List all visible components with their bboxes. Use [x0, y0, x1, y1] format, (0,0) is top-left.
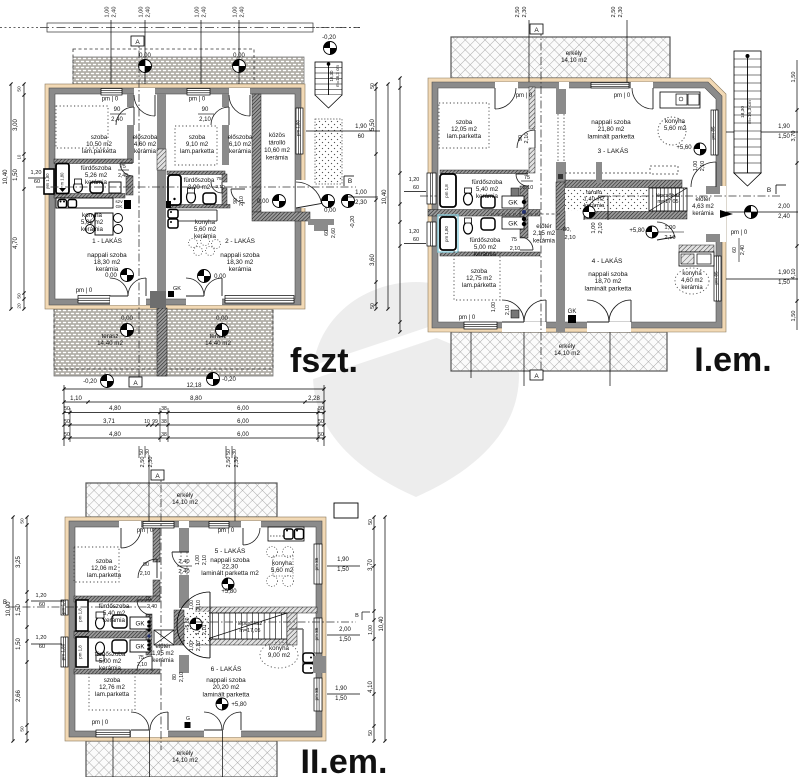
- svg-text:nappali szoba: nappali szoba: [220, 252, 260, 259]
- svg-text:konyha: konyha: [82, 212, 103, 219]
- svg-text:pm | 0: pm | 0: [76, 288, 93, 294]
- svg-text:14,40 m2: 14,40 m2: [97, 340, 123, 347]
- svg-text:szoba: szoba: [456, 119, 473, 126]
- svg-text:75: 75: [145, 596, 151, 602]
- svg-text:38: 38: [161, 432, 167, 438]
- svg-text:1,00: 1,00: [233, 7, 239, 18]
- svg-text:m=17,05: m=17,05: [657, 199, 678, 205]
- svg-text:fürdőszoba: fürdőszoba: [95, 651, 126, 658]
- svg-text:2,00: 2,00: [339, 627, 351, 633]
- svg-text:60: 60: [413, 237, 419, 243]
- svg-text:5,00 m2: 5,00 m2: [474, 244, 497, 251]
- svg-text:18,30: 18,30: [740, 106, 746, 118]
- svg-text:75: 75: [216, 176, 222, 182]
- svg-text:90: 90: [143, 562, 149, 568]
- svg-text:A: A: [135, 39, 140, 46]
- svg-text:12,76 m2: 12,76 m2: [99, 684, 125, 691]
- svg-text:pm | 0: pm | 0: [218, 528, 235, 534]
- svg-text:1,00: 1,00: [664, 225, 675, 231]
- svg-text:4,10: 4,10: [368, 681, 374, 693]
- svg-text:GK: GK: [508, 221, 518, 228]
- svg-text:1,00: 1,00: [139, 7, 145, 18]
- svg-text:szoba: szoba: [104, 677, 121, 684]
- svg-text:1,10: 1,10: [70, 396, 82, 402]
- svg-text:9,00 m2: 9,00 m2: [268, 652, 291, 659]
- svg-text:kerámia: kerámia: [266, 155, 289, 162]
- svg-text:18,30: 18,30: [329, 70, 334, 82]
- svg-text:1,90: 1,90: [335, 686, 347, 692]
- svg-text:nappali szoba: nappali szoba: [591, 119, 631, 126]
- svg-text:5,06 m2: 5,06 m2: [81, 219, 104, 226]
- svg-text:lam.parketta: lam.parketta: [87, 572, 122, 579]
- svg-text:2,30: 2,30: [234, 457, 240, 468]
- svg-text:5,00 m2: 5,00 m2: [99, 658, 122, 665]
- svg-text:1,50: 1,50: [337, 567, 349, 573]
- svg-text:75: 75: [511, 237, 517, 243]
- svg-text:2,40: 2,40: [178, 559, 189, 565]
- svg-text:kerámia: kerámia: [96, 266, 119, 273]
- svg-text:fürdőszoba: fürdőszoba: [99, 603, 130, 610]
- svg-text:60: 60: [732, 247, 738, 253]
- svg-text:50: 50: [370, 83, 376, 89]
- svg-text:2,00: 2,00: [778, 204, 790, 210]
- svg-text:pm | 0: pm | 0: [92, 720, 109, 726]
- svg-text:60: 60: [39, 602, 45, 608]
- svg-text:előszoba: előszoba: [133, 134, 158, 141]
- svg-text:18,30 m2: 18,30 m2: [227, 259, 254, 266]
- svg-text:50: 50: [64, 406, 70, 412]
- svg-text:1,20: 1,20: [409, 177, 420, 183]
- svg-text:B: B: [355, 613, 359, 619]
- svg-text:20: 20: [17, 303, 23, 309]
- svg-text:pm 1,8: pm 1,8: [78, 608, 83, 622]
- svg-text:lam.parketta: lam.parketta: [180, 148, 215, 155]
- svg-text:2,10: 2,10: [140, 571, 151, 577]
- svg-text:21,80 m2: 21,80 m2: [598, 126, 625, 133]
- svg-text:1,50: 1,50: [778, 134, 790, 140]
- svg-text:12,05 m2: 12,05 m2: [451, 126, 477, 133]
- svg-text:8,80: 8,80: [190, 396, 202, 402]
- svg-text:18,30 m2: 18,30 m2: [94, 259, 121, 266]
- svg-text:A: A: [155, 473, 160, 480]
- svg-text:4,80: 4,80: [109, 432, 121, 438]
- svg-text:1,00: 1,00: [195, 555, 201, 565]
- svg-text:5 - LAKÁS: 5 - LAKÁS: [215, 546, 246, 555]
- svg-text:75: 75: [120, 164, 126, 170]
- svg-text:5,50: 5,50: [370, 119, 376, 131]
- svg-text:kerámia: kerámia: [692, 211, 714, 217]
- svg-text:+5,60: +5,60: [676, 145, 692, 151]
- svg-text:2,30: 2,30: [522, 7, 528, 18]
- svg-text:GK: GK: [173, 286, 181, 292]
- svg-text:kerámia: kerámia: [533, 237, 556, 244]
- svg-text:előtér: előtér: [155, 644, 170, 650]
- svg-text:4,63 m2: 4,63 m2: [692, 204, 714, 210]
- svg-text:2,10: 2,10: [598, 222, 604, 233]
- svg-text:1,20: 1,20: [31, 170, 42, 176]
- svg-text:14,40 m2: 14,40 m2: [205, 340, 231, 347]
- svg-text:30: 30: [232, 449, 238, 455]
- svg-text:2,50: 2,50: [226, 457, 232, 468]
- svg-text:kerámia: kerámia: [229, 148, 252, 155]
- svg-text:kerámia: kerámia: [103, 617, 126, 624]
- svg-text:laminált parketta: laminált parketta: [588, 133, 635, 140]
- svg-text:1,00: 1,00: [189, 641, 195, 651]
- svg-text:75: 75: [138, 655, 144, 661]
- svg-text:10: 10: [17, 154, 22, 159]
- svg-text:6,00: 6,00: [237, 419, 249, 425]
- svg-text:75: 75: [524, 175, 530, 181]
- svg-text:50: 50: [20, 726, 26, 732]
- svg-text:1,00: 1,00: [491, 302, 497, 312]
- svg-text:2,10: 2,10: [524, 133, 530, 144]
- svg-text:14,10 m2: 14,10 m2: [172, 499, 198, 506]
- svg-text:1,90: 1,90: [778, 124, 790, 130]
- svg-text:60: 60: [39, 644, 45, 650]
- svg-text:pm | 0: pm | 0: [189, 97, 206, 103]
- svg-text:50: 50: [368, 519, 374, 525]
- svg-text:nappali szoba: nappali szoba: [206, 677, 246, 684]
- svg-text:2,10: 2,10: [196, 641, 202, 651]
- svg-text:szoba: szoba: [189, 134, 206, 141]
- svg-text:kerámia: kerámia: [85, 179, 108, 186]
- svg-text:50: 50: [370, 303, 376, 309]
- svg-text:14,10 m2: 14,10 m2: [172, 757, 198, 764]
- svg-text:+5,80: +5,80: [629, 228, 645, 234]
- svg-text:A: A: [534, 27, 539, 34]
- svg-text:m=17,05: m=17,05: [239, 628, 260, 634]
- svg-text:4,70: 4,70: [13, 237, 19, 249]
- svg-text:B: B: [767, 187, 771, 194]
- svg-text:2,40: 2,40: [202, 7, 208, 18]
- svg-text:0,00: 0,00: [257, 199, 269, 205]
- svg-text:pm 1,80: pm 1,80: [296, 120, 301, 136]
- svg-text:4,60 m2: 4,60 m2: [134, 141, 157, 148]
- svg-text:lam.parketta: lam.parketta: [95, 691, 130, 698]
- svg-text:2,10: 2,10: [179, 672, 185, 682]
- svg-text:erkély: erkély: [559, 343, 576, 350]
- svg-text:1,00: 1,00: [368, 625, 374, 635]
- svg-text:pm | 0: pm | 0: [731, 230, 748, 236]
- svg-text:lam.parketta: lam.parketta: [82, 148, 117, 155]
- svg-text:pm 85: pm 85: [714, 271, 720, 285]
- svg-text:m=16,3 cm: m=16,3 cm: [335, 65, 340, 87]
- svg-text:2,50: 2,50: [140, 457, 146, 468]
- svg-text:fürdőszoba: fürdőszoba: [472, 179, 503, 186]
- svg-text:2,40: 2,40: [112, 7, 118, 18]
- svg-text:50: 50: [17, 86, 23, 92]
- svg-text:2,15 m2: 2,15 m2: [533, 230, 556, 237]
- svg-text:erkély: erkély: [566, 50, 583, 57]
- svg-text:10: 10: [144, 419, 150, 425]
- svg-text:lam.parketta: lam.parketta: [447, 133, 482, 140]
- svg-text:-0,20: -0,20: [350, 216, 356, 229]
- svg-text:0,00: 0,00: [214, 274, 226, 280]
- svg-text:laminált parketta m2: laminált parketta m2: [201, 570, 259, 577]
- svg-text:1,50: 1,50: [335, 696, 347, 702]
- svg-text:2,10: 2,10: [700, 161, 706, 172]
- svg-text:10,40: 10,40: [382, 189, 388, 205]
- svg-text:4,60 m2: 4,60 m2: [681, 278, 703, 284]
- svg-text:4,10: 4,10: [791, 269, 797, 280]
- svg-text:2,10: 2,10: [202, 625, 208, 635]
- svg-text:2,10: 2,10: [664, 235, 675, 241]
- svg-text:pm 85: pm 85: [314, 627, 319, 640]
- svg-text:1,40 m2: 1,40 m2: [584, 197, 605, 203]
- svg-text:2,30: 2,30: [355, 200, 367, 206]
- svg-text:1,50: 1,50: [16, 638, 22, 650]
- svg-text:A: A: [534, 373, 539, 380]
- svg-text:1,50: 1,50: [778, 280, 790, 286]
- svg-text:-0,20: -0,20: [322, 35, 336, 41]
- svg-text:előtér: előtér: [695, 197, 710, 203]
- svg-text:5,60 m2: 5,60 m2: [664, 125, 687, 132]
- svg-text:2,50: 2,50: [515, 7, 521, 18]
- svg-text:kerámia: kerámia: [134, 148, 157, 155]
- svg-text:tárolló: tárolló: [269, 140, 286, 147]
- svg-text:konyhá: konyhá: [682, 271, 702, 277]
- svg-text:20,20 m2: 20,20 m2: [213, 684, 240, 691]
- svg-text:1,00: 1,00: [693, 161, 699, 172]
- svg-text:fürdőszoba: fürdőszoba: [470, 237, 501, 244]
- svg-text:18,70 m2: 18,70 m2: [595, 278, 622, 285]
- svg-text:3,25: 3,25: [16, 556, 22, 568]
- svg-text:szoba: szoba: [96, 558, 113, 565]
- svg-text:1,50: 1,50: [791, 72, 797, 83]
- svg-text:0,00: 0,00: [105, 273, 117, 279]
- svg-text:60: 60: [34, 179, 40, 185]
- svg-text:erkély: erkély: [177, 492, 194, 499]
- svg-text:9,10 m2: 9,10 m2: [186, 141, 209, 148]
- svg-text:pm 1,80: pm 1,80: [444, 226, 449, 242]
- svg-text:12,75 m2: 12,75 m2: [466, 275, 492, 282]
- svg-text:50: 50: [318, 432, 324, 438]
- svg-text:I.em.: I.em.: [694, 341, 771, 379]
- svg-text:1,50: 1,50: [791, 311, 797, 322]
- svg-text:12,18: 12,18: [186, 383, 202, 389]
- svg-text:pm 1,80: pm 1,80: [45, 173, 50, 189]
- svg-text:pm | 0: pm | 0: [459, 315, 476, 321]
- svg-text:5,40 m2: 5,40 m2: [476, 186, 499, 193]
- svg-text:kerámia: kerámia: [229, 266, 252, 273]
- svg-text:GK: GK: [136, 621, 146, 628]
- svg-text:14,10 m2: 14,10 m2: [554, 350, 580, 357]
- svg-text:1,90: 1,90: [337, 557, 349, 563]
- svg-text:2,10: 2,10: [523, 185, 534, 191]
- svg-text:pm | 0: pm | 0: [516, 93, 533, 99]
- svg-text:pm | 0: pm | 0: [102, 97, 119, 103]
- svg-text:GK: GK: [568, 309, 577, 315]
- svg-text:laminált parketta: laminált parketta: [203, 691, 250, 698]
- svg-text:kerámia: kerámia: [681, 285, 703, 291]
- svg-text:10,00: 10,00: [6, 601, 12, 617]
- svg-text:pm 1,8: pm 1,8: [444, 184, 449, 198]
- svg-text:10,50 m2: 10,50 m2: [86, 141, 112, 148]
- svg-text:szoba: szoba: [91, 134, 108, 141]
- svg-text:1,20: 1,20: [36, 635, 47, 641]
- svg-text:90: 90: [202, 107, 209, 113]
- svg-text:50: 50: [318, 406, 324, 412]
- svg-text:3,70: 3,70: [791, 131, 797, 142]
- svg-text:GK: GK: [508, 200, 518, 207]
- svg-text:50: 50: [318, 419, 324, 425]
- svg-text:m=16,3 cm: m=16,3 cm: [747, 100, 753, 124]
- svg-text:pm 85: pm 85: [314, 687, 319, 700]
- svg-text:2,40: 2,40: [240, 7, 246, 18]
- svg-text:4,80: 4,80: [109, 406, 121, 412]
- svg-text:2,66: 2,66: [16, 690, 22, 702]
- svg-text:99: 99: [152, 419, 158, 425]
- svg-text:pm 85: pm 85: [314, 557, 319, 570]
- svg-text:pm | 0: pm | 0: [137, 528, 154, 534]
- svg-text:6 - LAKÁS: 6 - LAKÁS: [211, 664, 242, 673]
- svg-text:12,06 m2: 12,06 m2: [91, 565, 117, 572]
- svg-text:konyhá: konyhá: [269, 645, 290, 652]
- svg-text:1,20: 1,20: [409, 229, 420, 235]
- svg-text:közös: közös: [269, 132, 285, 139]
- svg-text:előtér: előtér: [536, 223, 551, 230]
- svg-text:nappali szoba: nappali szoba: [588, 271, 628, 278]
- svg-text:3,90 m2: 3,90 m2: [188, 184, 211, 191]
- svg-text:6,00: 6,00: [237, 432, 249, 438]
- svg-text:3,70: 3,70: [368, 559, 374, 571]
- svg-text:erkély: erkély: [177, 750, 194, 757]
- svg-text:2,30: 2,30: [618, 7, 624, 18]
- svg-text:2,10: 2,10: [137, 662, 147, 668]
- svg-text:30: 30: [145, 449, 151, 455]
- svg-text:pm 85: pm 85: [711, 126, 717, 140]
- svg-text:2,30: 2,30: [148, 457, 154, 468]
- svg-text:2,40: 2,40: [146, 7, 152, 18]
- svg-text:0,00: 0,00: [216, 316, 228, 322]
- svg-text:kerámia: kerámia: [99, 665, 122, 672]
- svg-text:50: 50: [368, 730, 374, 736]
- svg-text:3,71: 3,71: [103, 419, 115, 425]
- svg-text:-0,20: -0,20: [83, 379, 97, 385]
- svg-text:+5,80: +5,80: [185, 617, 191, 630]
- svg-text:konyha: konyha: [195, 219, 216, 226]
- svg-text:GK: GK: [136, 644, 146, 651]
- svg-text:terasz: terasz: [102, 333, 119, 340]
- svg-text:1,00: 1,00: [105, 7, 111, 18]
- svg-text:10,60 m2: 10,60 m2: [264, 147, 290, 154]
- svg-text:60: 60: [413, 185, 419, 191]
- svg-text:2 - LAKÁS: 2 - LAKÁS: [225, 236, 255, 245]
- svg-text:kerámia: kerámia: [152, 658, 174, 664]
- svg-text:+5,80: +5,80: [221, 589, 237, 595]
- svg-text:1,90: 1,90: [778, 270, 790, 276]
- svg-text:előszoba: előszoba: [228, 134, 253, 141]
- svg-text:2,10: 2,10: [564, 235, 575, 241]
- svg-text:pm 1,80: pm 1,80: [61, 643, 66, 660]
- svg-text:38: 38: [161, 419, 167, 425]
- svg-text:1,50: 1,50: [16, 604, 22, 616]
- svg-text:II.em.: II.em.: [301, 743, 388, 777]
- svg-text:50: 50: [20, 518, 26, 524]
- svg-text:2,50: 2,50: [611, 7, 617, 18]
- svg-text:pm | 0: pm | 0: [614, 93, 631, 99]
- svg-text:0,00: 0,00: [121, 316, 133, 322]
- svg-text:3,00: 3,00: [13, 119, 19, 131]
- svg-text:2,40: 2,40: [147, 604, 157, 610]
- svg-text:2,28: 2,28: [308, 396, 320, 402]
- svg-text:GK: GK: [116, 204, 124, 210]
- svg-text:2,10: 2,10: [202, 555, 208, 565]
- svg-text:2,10: 2,10: [239, 196, 245, 206]
- svg-text:B: B: [348, 178, 352, 185]
- svg-text:1,50: 1,50: [13, 169, 19, 181]
- svg-text:fürdőszoba: fürdőszoba: [184, 177, 215, 184]
- svg-text:A: A: [133, 380, 138, 387]
- svg-text:tárolló: tárolló: [586, 190, 602, 196]
- svg-text:2,40: 2,40: [118, 173, 128, 179]
- svg-text:2,40: 2,40: [111, 117, 123, 123]
- svg-text:14,10 m2: 14,10 m2: [561, 57, 587, 64]
- svg-text:50: 50: [17, 293, 23, 299]
- svg-text:pm 1,8: pm 1,8: [78, 645, 83, 659]
- svg-text:fszt.: fszt.: [290, 342, 358, 380]
- svg-text:laminált parketta: laminált parketta: [585, 285, 632, 292]
- svg-text:kerámia: kerámia: [476, 193, 499, 200]
- svg-text:60: 60: [324, 230, 330, 236]
- svg-text:2,10: 2,10: [199, 117, 211, 123]
- svg-text:2,40: 2,40: [778, 214, 790, 220]
- svg-text:10,40: 10,40: [3, 169, 9, 185]
- svg-text:G: G: [186, 716, 190, 722]
- svg-text:10,40: 10,40: [379, 616, 385, 632]
- svg-text:2,10: 2,10: [510, 246, 521, 252]
- svg-text:fürdőszoba: fürdőszoba: [81, 165, 112, 172]
- svg-text:1,00: 1,00: [189, 600, 195, 610]
- svg-text:1,50: 1,50: [339, 637, 351, 643]
- svg-text:4 - LAKÁS: 4 - LAKÁS: [592, 256, 623, 265]
- svg-text:5,40 m2: 5,40 m2: [103, 610, 126, 617]
- svg-text:6,10 m2: 6,10 m2: [229, 141, 252, 148]
- svg-text:90: 90: [114, 107, 121, 113]
- svg-text:3 - LAKÁS: 3 - LAKÁS: [598, 146, 629, 155]
- svg-text:3,60: 3,60: [370, 254, 376, 266]
- svg-text:-0,20: -0,20: [222, 377, 236, 383]
- svg-text:80: 80: [172, 674, 178, 680]
- svg-text:5,26 m2: 5,26 m2: [85, 172, 108, 179]
- svg-text:1,00: 1,00: [355, 190, 367, 196]
- svg-text:60: 60: [358, 134, 365, 140]
- svg-text:1,20: 1,20: [36, 593, 47, 599]
- svg-text:kerámia: kerámia: [474, 251, 497, 258]
- svg-text:1 - LAKÁS: 1 - LAKÁS: [92, 236, 122, 245]
- svg-text:50: 50: [64, 419, 70, 425]
- svg-text:50: 50: [64, 432, 70, 438]
- svg-text:38: 38: [161, 406, 167, 412]
- svg-text:+5,80: +5,80: [231, 702, 247, 708]
- svg-text:konyha: konyha: [665, 118, 686, 125]
- svg-text:kerámia: kerámia: [194, 233, 217, 240]
- svg-text:m 1,80: m 1,80: [60, 172, 65, 185]
- svg-text:2,60: 2,60: [331, 228, 337, 238]
- svg-text:kerámia: kerámia: [81, 226, 104, 233]
- svg-text:5,60 m2: 5,60 m2: [194, 226, 217, 233]
- svg-text:80,: 80,: [563, 227, 571, 233]
- svg-text:nappali szoba: nappali szoba: [87, 252, 127, 259]
- svg-text:0,00: 0,00: [324, 208, 336, 214]
- svg-text:1,90: 1,90: [355, 124, 367, 130]
- svg-text:2,40: 2,40: [178, 569, 189, 575]
- svg-text:6,00: 6,00: [237, 406, 249, 412]
- svg-text:2,10: 2,10: [505, 305, 511, 315]
- svg-text:2,40: 2,40: [740, 245, 746, 255]
- svg-text:1,95 m2: 1,95 m2: [152, 651, 174, 657]
- svg-text:konyha: konyha: [272, 560, 293, 567]
